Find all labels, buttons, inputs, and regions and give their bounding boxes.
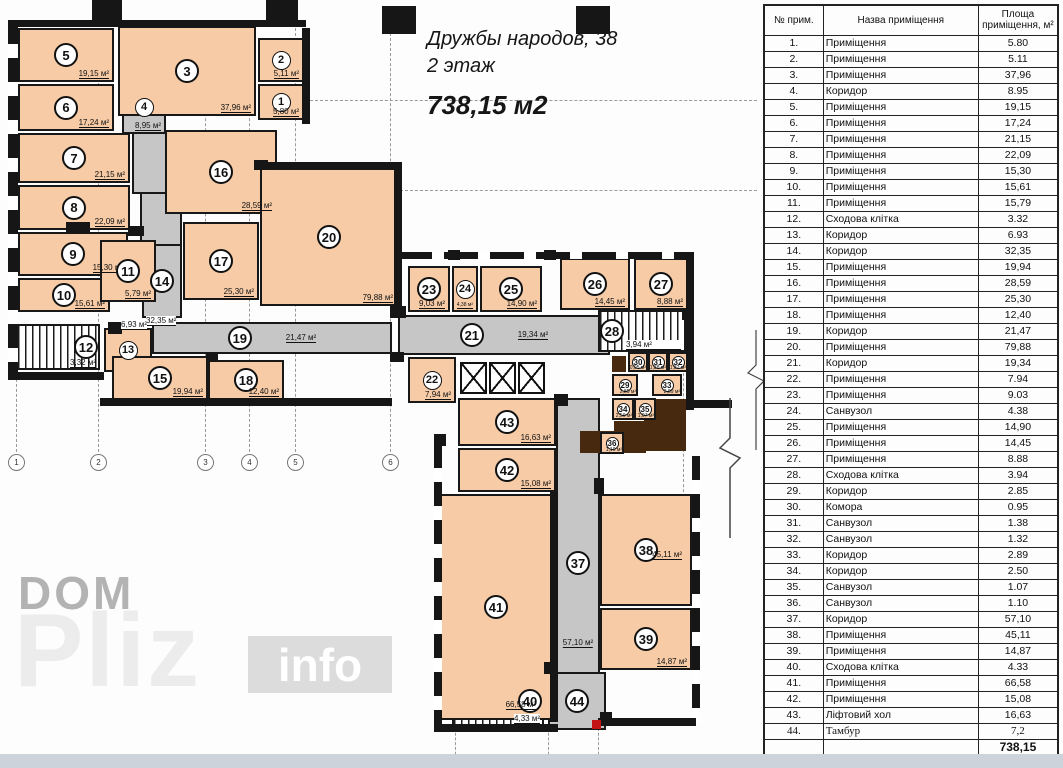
room-number: 27 (649, 272, 673, 296)
wall-segment (550, 492, 558, 722)
table-total-value: 738,15 (978, 739, 1058, 755)
wall-pier (544, 662, 558, 674)
wall-pier (682, 310, 694, 320)
room-area-label: 0,95 м² (630, 365, 646, 372)
room-area-label: 37,96 м² (221, 103, 251, 113)
floor-subtitle: 2 этаж (427, 53, 617, 80)
table-row: 35.Санвузол1.07 (764, 579, 1058, 595)
grid-axis-1: 1 (8, 454, 25, 471)
elevator-cell (489, 362, 516, 394)
table-row: 8.Приміщення22,09 (764, 147, 1058, 163)
bottom-strip (0, 754, 1063, 768)
table-row: 37.Коридор57,10 (764, 611, 1058, 627)
room-area-label: 1,07 м² (638, 413, 654, 420)
room-area-label: 8,88 м² (657, 297, 683, 307)
room-6: 6 17,24 м² (18, 84, 114, 131)
room-area-label: 25,30 м² (224, 287, 254, 297)
room-area-label: 14,45 м² (595, 297, 625, 307)
elevator-shaft (460, 362, 545, 394)
room-number: 43 (495, 410, 519, 434)
room-36: 36 1,10 м² (600, 432, 624, 454)
table-row: 2.Приміщення5.11 (764, 51, 1058, 67)
room-number: 3 (175, 59, 199, 83)
table-row: 21.Коридор19,34 (764, 355, 1058, 371)
wall-segment (260, 162, 400, 169)
room-number: 25 (499, 277, 523, 301)
table-row: 24.Санвузол4.38 (764, 403, 1058, 419)
room-12-stairs: 12 3,32 м² (16, 324, 100, 370)
table-row: 6.Приміщення17,24 (764, 115, 1058, 131)
grid-axis-2: 2 (90, 454, 107, 471)
table-row: 4.Коридор8.95 (764, 83, 1058, 99)
room-area-label: 19,94 м² (173, 387, 203, 397)
room-area-label: 2,50 м² (616, 413, 632, 420)
room-18: 18 12,40 м² (208, 360, 284, 400)
watermark-info: info (278, 638, 362, 692)
room-area-label: 17,24 м² (79, 118, 109, 128)
table-row: 7.Приміщення21,15 (764, 131, 1058, 147)
room-number: 17 (209, 249, 233, 273)
grid-line (400, 190, 757, 191)
table-row: 41.Приміщення66,58 (764, 675, 1058, 691)
room-area-label: 12,40 м² (249, 387, 279, 397)
room-area-label: 9,03 м² (419, 299, 445, 309)
room-area-label: 16,63 м² (521, 433, 551, 443)
room-area-label: 1,38 м² (650, 365, 666, 372)
room-area-label: 32,35 м² (146, 316, 176, 326)
room-area-label: 14,87 м² (657, 657, 687, 667)
room-number: 23 (417, 277, 441, 301)
watermark-info-box: info (248, 636, 392, 693)
grid-axis-label: 6 (388, 458, 392, 467)
table-row: 12.Сходова клітка3.32 (764, 211, 1058, 227)
room-area-label: 1,32 м² (670, 365, 686, 372)
table-total-row: 738,15 (764, 739, 1058, 755)
room-38: 38 45,11 м² (600, 494, 692, 606)
wall-with-windows (8, 20, 18, 378)
room-number: 13 (119, 341, 138, 360)
table-row: 44.Тамбур7,2 (764, 723, 1058, 739)
wall-segment (434, 724, 558, 732)
wall-pier (390, 306, 406, 318)
room-number: 22 (423, 371, 442, 390)
table-row: 15.Приміщення19,94 (764, 259, 1058, 275)
table-row: 3.Приміщення37,96 (764, 67, 1058, 83)
room-number: 19 (228, 326, 252, 350)
table-row: 42.Приміщення15,08 (764, 691, 1058, 707)
grid-axis-4: 4 (241, 454, 258, 471)
table-row: 10.Приміщення15,61 (764, 179, 1058, 195)
room-number: 15 (148, 366, 172, 390)
room-19-corridor: 19 21,47 м² (152, 322, 392, 354)
room-area-label: 57,10 м² (563, 638, 593, 648)
room-area-label: 5,11 м² (274, 69, 299, 79)
room-area-label: 28,59 м² (242, 201, 272, 211)
room-area-label: 45,11 м² (652, 550, 682, 560)
room-43-lift-hall: 43 16,63 м² (458, 398, 556, 446)
table-header-row: № прим. Назва приміщення Площа приміщенн… (764, 5, 1058, 35)
room-area-label: 66,58 м² (506, 700, 536, 710)
room-27: 27 8,88 м² (634, 258, 688, 310)
table-row: 16.Приміщення28,59 (764, 275, 1058, 291)
room-area-label: 14,90 м² (507, 299, 537, 309)
room-area-label: 5,79 м² (125, 289, 151, 299)
room-20: 20 79,88 м² (260, 168, 398, 306)
room-number: 11 (116, 259, 140, 283)
room-number: 5 (54, 43, 78, 67)
table-row: 36.Санвузол1.10 (764, 595, 1058, 611)
room-23: 23 9,03 м² (408, 266, 450, 312)
room-5: 5 19,15 м² (18, 28, 114, 82)
grid-axis-5: 5 (287, 454, 304, 471)
wall-pier (594, 478, 604, 494)
wall-pier (206, 352, 218, 362)
room-number: 2 (272, 51, 291, 70)
room-area-label: 2,85 м² (620, 389, 636, 396)
table-row: 43.Ліфтовий хол16,63 (764, 707, 1058, 723)
room-41: 41 66,58 м² (440, 494, 552, 720)
wall-pier (544, 250, 556, 260)
table-row: 30.Комора0.95 (764, 499, 1058, 515)
room-number: 12 (74, 335, 98, 359)
room-29: 29 2,85 м² (612, 374, 638, 396)
room-15: 15 19,94 м² (112, 356, 208, 400)
room-number: 7 (62, 146, 86, 170)
table-row: 1.Приміщення5.80 (764, 35, 1058, 51)
room-number: 28 (600, 319, 624, 343)
room-35: 35 1,07 м² (634, 398, 656, 420)
table-row: 40.Сходова клітка4.33 (764, 659, 1058, 675)
table-row: 29.Коридор2.85 (764, 483, 1058, 499)
floorplan-page: 4 8,95 м² 14 32,35 м² 19 21,47 м² 21 19,… (0, 0, 1063, 768)
wall-segment (394, 162, 402, 314)
grid-axis-label: 5 (293, 458, 297, 467)
table-row: 25.Приміщення14,90 (764, 419, 1058, 435)
room-number: 39 (634, 627, 658, 651)
title-block: Дружбы народов, 38 2 этаж 738,15 м2 (427, 26, 617, 121)
table-row: 26.Приміщення14,45 (764, 435, 1058, 451)
room-22: 22 7,94 м² (408, 357, 456, 403)
wall-segment (8, 372, 104, 380)
wall-segment (382, 6, 416, 34)
grid-axis-label: 4 (247, 458, 251, 467)
room-33: 33 2,89 м² (652, 374, 682, 396)
table-row: 22.Приміщення7.94 (764, 371, 1058, 387)
room-1: 1 5,80 м² (258, 84, 304, 120)
room-number: 44 (565, 689, 589, 713)
room-area-label: 5,80 м² (273, 107, 299, 117)
premises-table: № прим. Назва приміщення Площа приміщенн… (763, 4, 1059, 756)
room-number: 21 (460, 323, 484, 347)
table-row: 18.Приміщення12,40 (764, 307, 1058, 323)
table-row: 39.Приміщення14,87 (764, 643, 1058, 659)
room-number: 41 (484, 595, 508, 619)
room-10: 10 15,61 м² (18, 278, 110, 312)
room-area-label: 8,95 м² (135, 121, 161, 131)
table-row: 33.Коридор2.89 (764, 547, 1058, 563)
total-area: 738,15 м2 (427, 90, 617, 121)
room-area-label: 19,34 м² (518, 330, 548, 340)
room-24: 24 4,38 м² (452, 266, 478, 312)
wall-pier (66, 222, 90, 234)
room-area-label: 4,33 м² (514, 714, 540, 724)
room-area-label: 22,09 м² (95, 217, 125, 227)
table-row: 17.Приміщення25,30 (764, 291, 1058, 307)
room-30: 30 0,95 м² (628, 352, 648, 372)
room-area-label: 79,88 м² (363, 293, 393, 303)
table-row: 13.Коридор6.93 (764, 227, 1058, 243)
table-row: 38.Приміщення45,11 (764, 627, 1058, 643)
room-7: 7 21,15 м² (18, 133, 130, 183)
room-25: 25 14,90 м² (480, 266, 542, 312)
header-name: Назва приміщення (823, 5, 978, 35)
room-area-label: 1,10 м² (606, 447, 622, 454)
room-number: 6 (54, 96, 78, 120)
room-number: 24 (456, 280, 475, 299)
header-num: № прим. (764, 5, 823, 35)
fixture-block (612, 356, 626, 372)
wall-pier (554, 394, 568, 406)
room-area-label: 15,61 м² (75, 299, 105, 309)
room-number: 8 (62, 196, 86, 220)
room-number: 42 (495, 458, 519, 482)
wall-with-windows (434, 444, 442, 728)
premises-table-wrap: № прим. Назва приміщення Площа приміщенн… (763, 4, 1059, 756)
wall-pier (600, 712, 612, 722)
wall-pier (390, 352, 404, 362)
red-marker (592, 720, 601, 729)
grid-axis-6: 6 (382, 454, 399, 471)
wall-pier (434, 434, 446, 446)
room-39: 39 14,87 м² (600, 608, 692, 670)
break-line (715, 398, 745, 538)
table-row: 27.Приміщення8.88 (764, 451, 1058, 467)
table-row: 19.Коридор21,47 (764, 323, 1058, 339)
table-row: 31.Санвузол1.38 (764, 515, 1058, 531)
wall-segment (266, 0, 298, 26)
room-17: 17 25,30 м² (183, 222, 259, 300)
table-row: 9.Приміщення15,30 (764, 163, 1058, 179)
wall-pier (448, 250, 460, 260)
header-area: Площа приміщення, м² (978, 5, 1058, 35)
wall-pier (108, 322, 122, 334)
room-number: 16 (209, 160, 233, 184)
table-row: 32.Санвузол1.32 (764, 531, 1058, 547)
wall-segment (100, 398, 392, 406)
room-area-label: 3,94 м² (626, 340, 681, 350)
grid-axis-label: 1 (14, 458, 18, 467)
elevator-cell (460, 362, 487, 394)
room-area-label: 21,15 м² (95, 170, 125, 180)
room-26: 26 14,45 м² (560, 258, 630, 310)
room-21-corridor: 21 19,34 м² (398, 315, 610, 355)
table-row: 34.Коридор2.50 (764, 563, 1058, 579)
table-row: 23.Приміщення9.03 (764, 387, 1058, 403)
room-number: 10 (52, 283, 76, 307)
watermark-dom: DOM (18, 566, 134, 620)
table-row: 14.Коридор32,35 (764, 243, 1058, 259)
grid-axis-label: 3 (203, 458, 207, 467)
room-34: 34 2,50 м² (612, 398, 634, 420)
wall-segment (598, 718, 696, 726)
room-area-label: 21,47 м² (286, 333, 316, 343)
room-area-label: 15,08 м² (521, 479, 551, 489)
room-area-label: 19,15 м² (79, 69, 109, 79)
room-number: 9 (61, 242, 85, 266)
room-28-stairs: 28 3,94 м² (598, 310, 686, 352)
wall-with-windows (692, 456, 700, 722)
room-area-label: 6,93 м² (121, 320, 147, 330)
wall-segment (302, 28, 310, 124)
table-row: 28.Сходова клітка3.94 (764, 467, 1058, 483)
wall-pier (254, 160, 268, 170)
room-number: 26 (583, 272, 607, 296)
elevator-cell (518, 362, 545, 394)
room-number: 37 (566, 551, 590, 575)
room-area-label: 2,89 м² (664, 389, 680, 396)
room-32: 32 1,32 м² (668, 352, 688, 372)
room-number: 14 (150, 269, 174, 293)
room-area-label: 3,32 м² (70, 358, 96, 368)
room-31: 31 1,38 м² (648, 352, 668, 372)
address-title: Дружбы народов, 38 (427, 26, 617, 53)
table-row: 5.Приміщення19,15 (764, 99, 1058, 115)
room-area-label: 7,94 м² (425, 390, 451, 400)
room-42: 42 15,08 м² (458, 448, 556, 492)
table-row: 20.Приміщення79,88 (764, 339, 1058, 355)
room-number: 20 (317, 225, 341, 249)
table-row: 11.Приміщення15,79 (764, 195, 1058, 211)
grid-axis-label: 2 (96, 458, 100, 467)
room-number: 4 (135, 98, 154, 117)
wall-segment (10, 20, 306, 27)
grid-axis-3: 3 (197, 454, 214, 471)
room-2: 2 5,11 м² (258, 38, 304, 82)
wall-pier (128, 226, 144, 236)
room-area-label: 4,38 м² (457, 302, 473, 309)
wall-segment (686, 252, 694, 410)
wall-segment (92, 0, 122, 26)
